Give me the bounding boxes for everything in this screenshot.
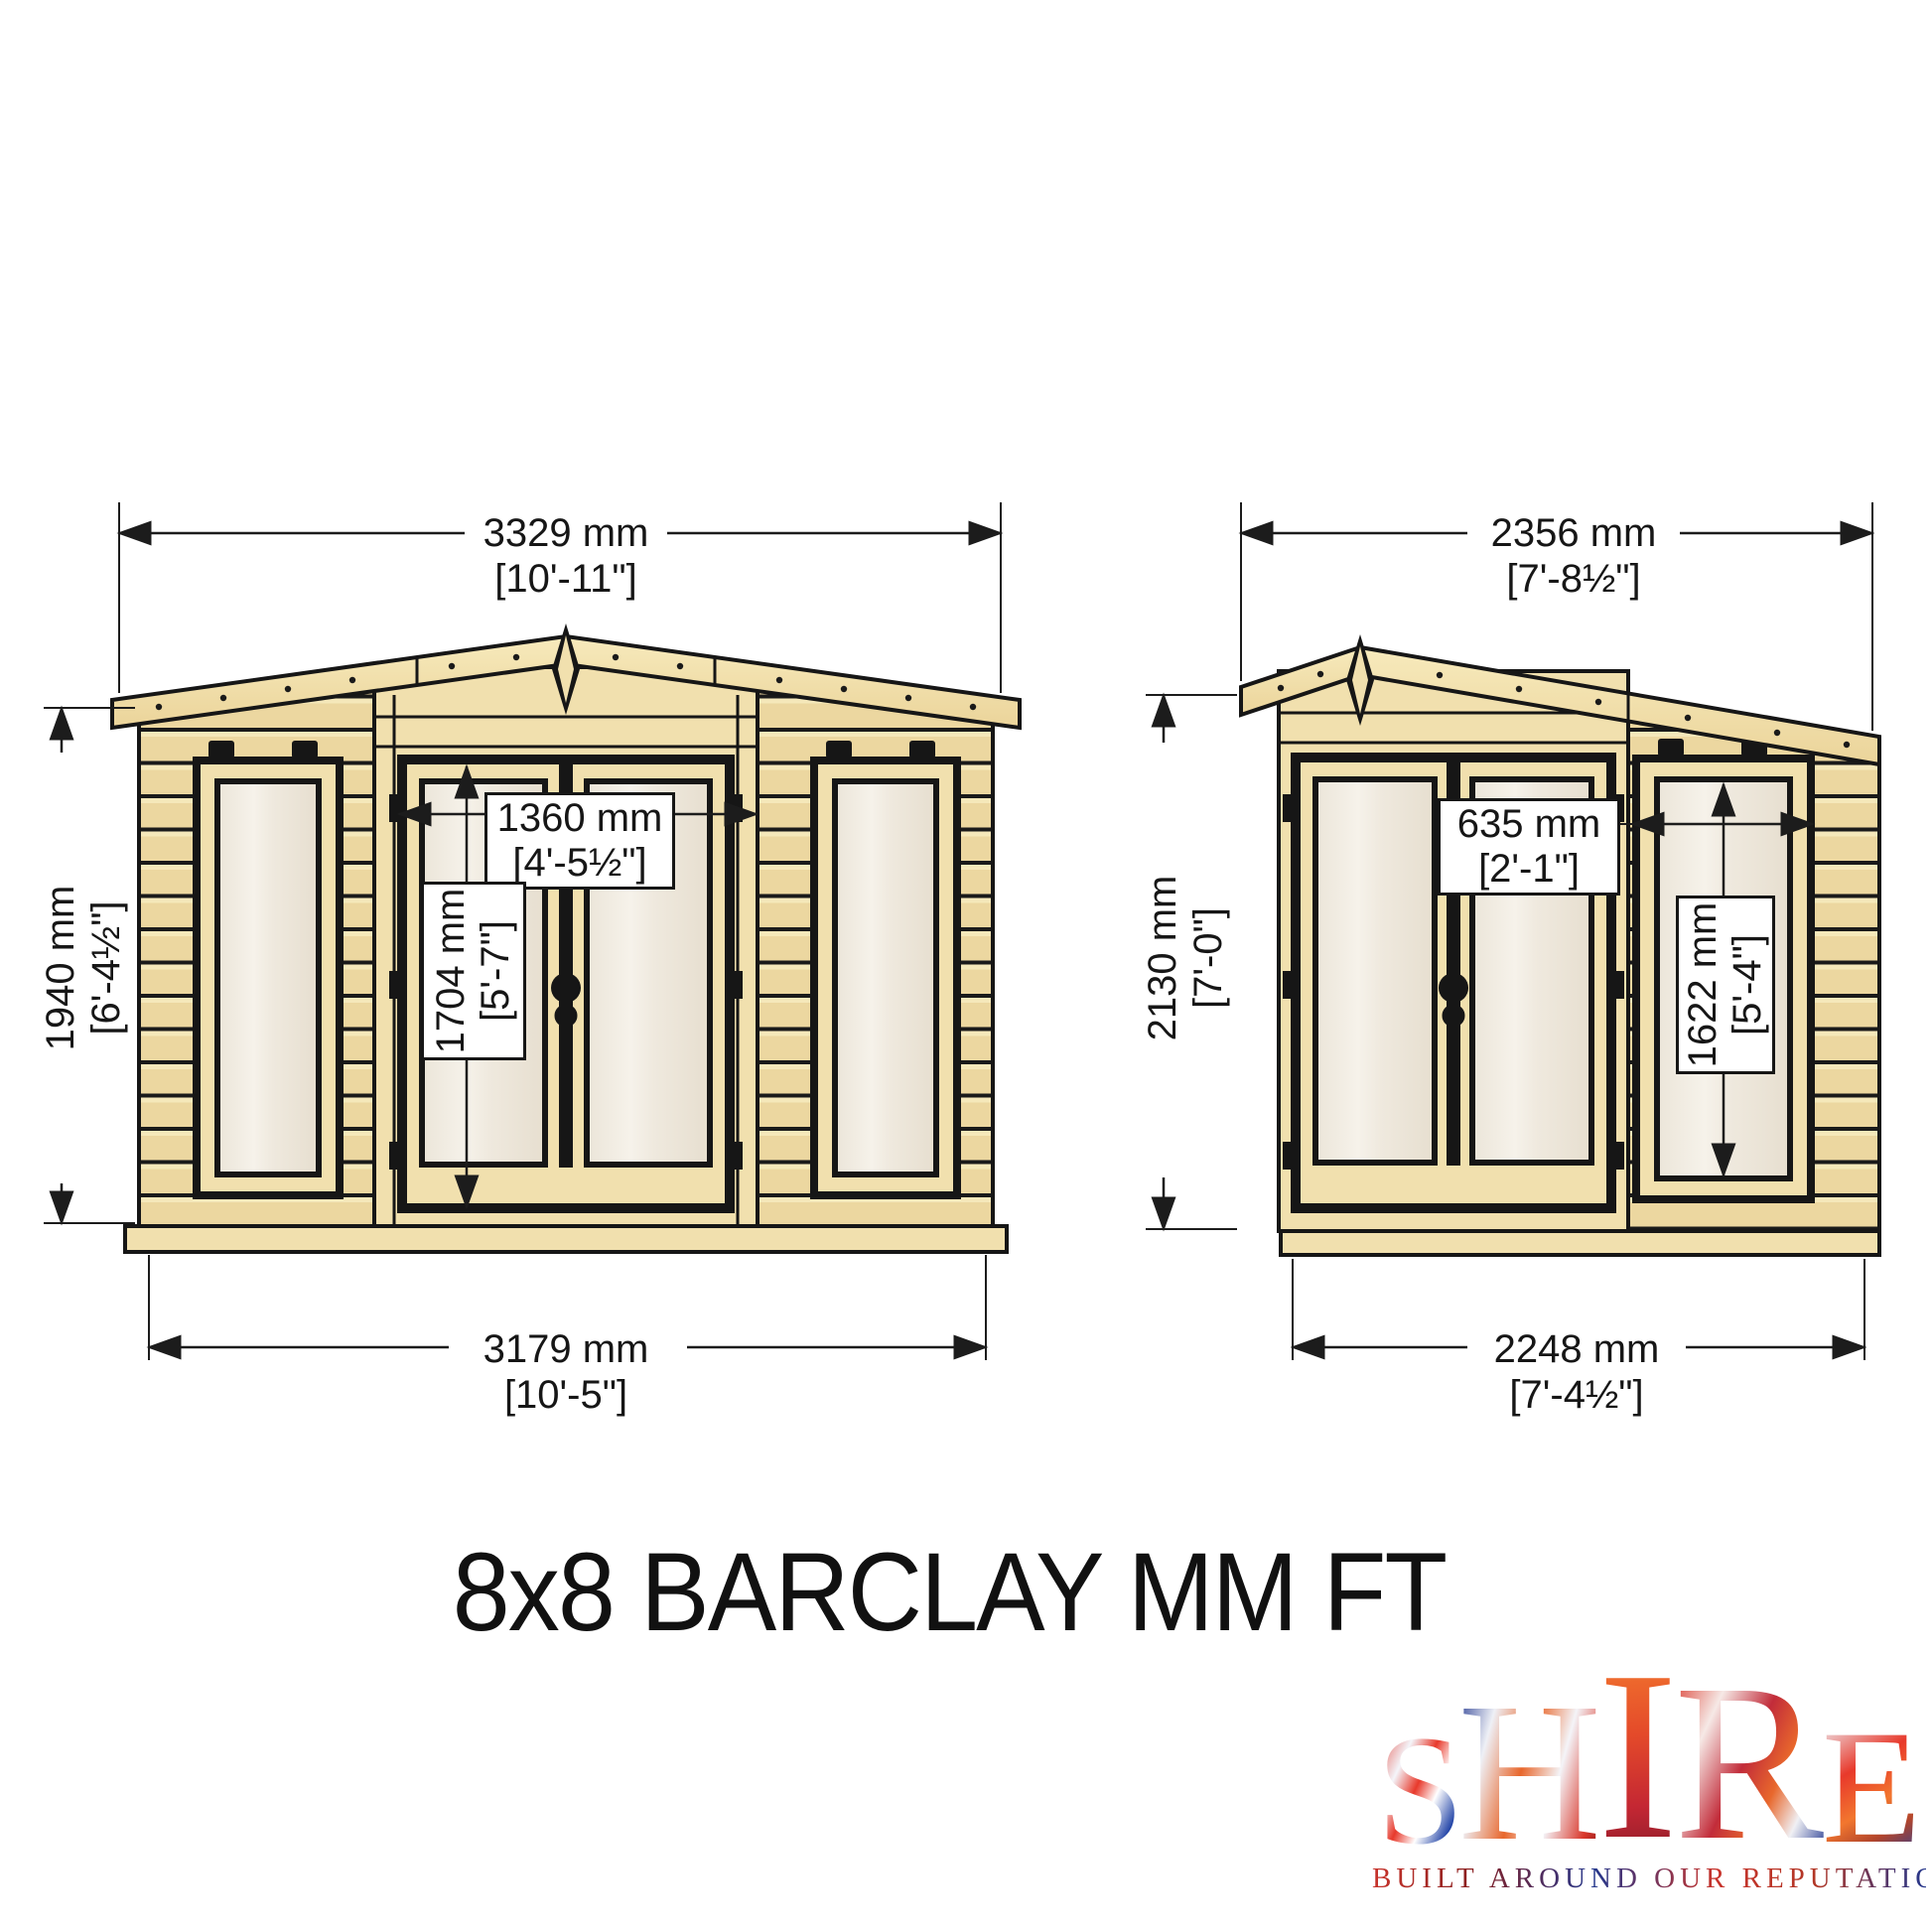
front-overall-width-dimension: 3329 mm [10'-11"]: [417, 510, 715, 602]
door-hinge: [1608, 1142, 1624, 1170]
shire-logo-wordmark: S H I R E: [1372, 1656, 1926, 1855]
door-hinge: [389, 794, 405, 822]
logo-letter: H: [1458, 1692, 1601, 1855]
technical-drawing-page: 3329 mm [10'-11"] 1940 mm [6'-4½"] 1360 …: [0, 0, 1932, 1932]
side-base: [1281, 1231, 1879, 1255]
logo-letter: I: [1597, 1656, 1678, 1855]
front-left-window: [193, 741, 344, 1199]
side-base-width-dimension: 2248 mm [7'-4½"]: [1428, 1326, 1725, 1418]
door-hinge: [1283, 971, 1299, 999]
logo-letter: S: [1377, 1726, 1464, 1856]
side-overall-width-dimension: 2356 mm [7'-8½"]: [1425, 510, 1723, 602]
door-hinge: [1283, 1142, 1299, 1170]
front-door-height-dimension-label: 1704 mm [5'-7"]: [421, 882, 526, 1060]
logo-tagline: BUILT AROUND OUR REPUTATION: [1372, 1863, 1926, 1895]
door-hinge: [1283, 794, 1299, 822]
shire-logo: S H I R E BUILT AROUND OUR REPUTATION: [1372, 1656, 1926, 1895]
door-hinge: [727, 971, 743, 999]
side-panel-width-dimension-label: 635 mm [2'-1"]: [1438, 798, 1620, 896]
door-hinge: [727, 1142, 743, 1170]
side-overall-height-dimension: 2130 mm [7'-0"]: [1140, 720, 1231, 1196]
door-hinge: [727, 794, 743, 822]
front-base: [125, 1226, 1007, 1252]
door-hinge: [1608, 971, 1624, 999]
logo-letter: R: [1674, 1671, 1824, 1855]
logo-letter: E: [1822, 1722, 1921, 1855]
door-handle-icon: [1439, 973, 1468, 1003]
door-hinge: [389, 1142, 405, 1170]
front-wall-height-dimension: 1940 mm [6'-4½"]: [38, 730, 129, 1206]
side-window-height-dimension-label: 1622 mm [5'-4"]: [1676, 896, 1775, 1074]
front-base-width-dimension: 3179 mm [10'-5"]: [417, 1326, 715, 1418]
page-title: 8x8 BARCLAY MM FT: [442, 1537, 1457, 1648]
door-handle-icon: [551, 973, 581, 1003]
front-right-window: [810, 741, 961, 1199]
door-hinge: [389, 971, 405, 999]
front-elevation-view: [44, 502, 1020, 1360]
